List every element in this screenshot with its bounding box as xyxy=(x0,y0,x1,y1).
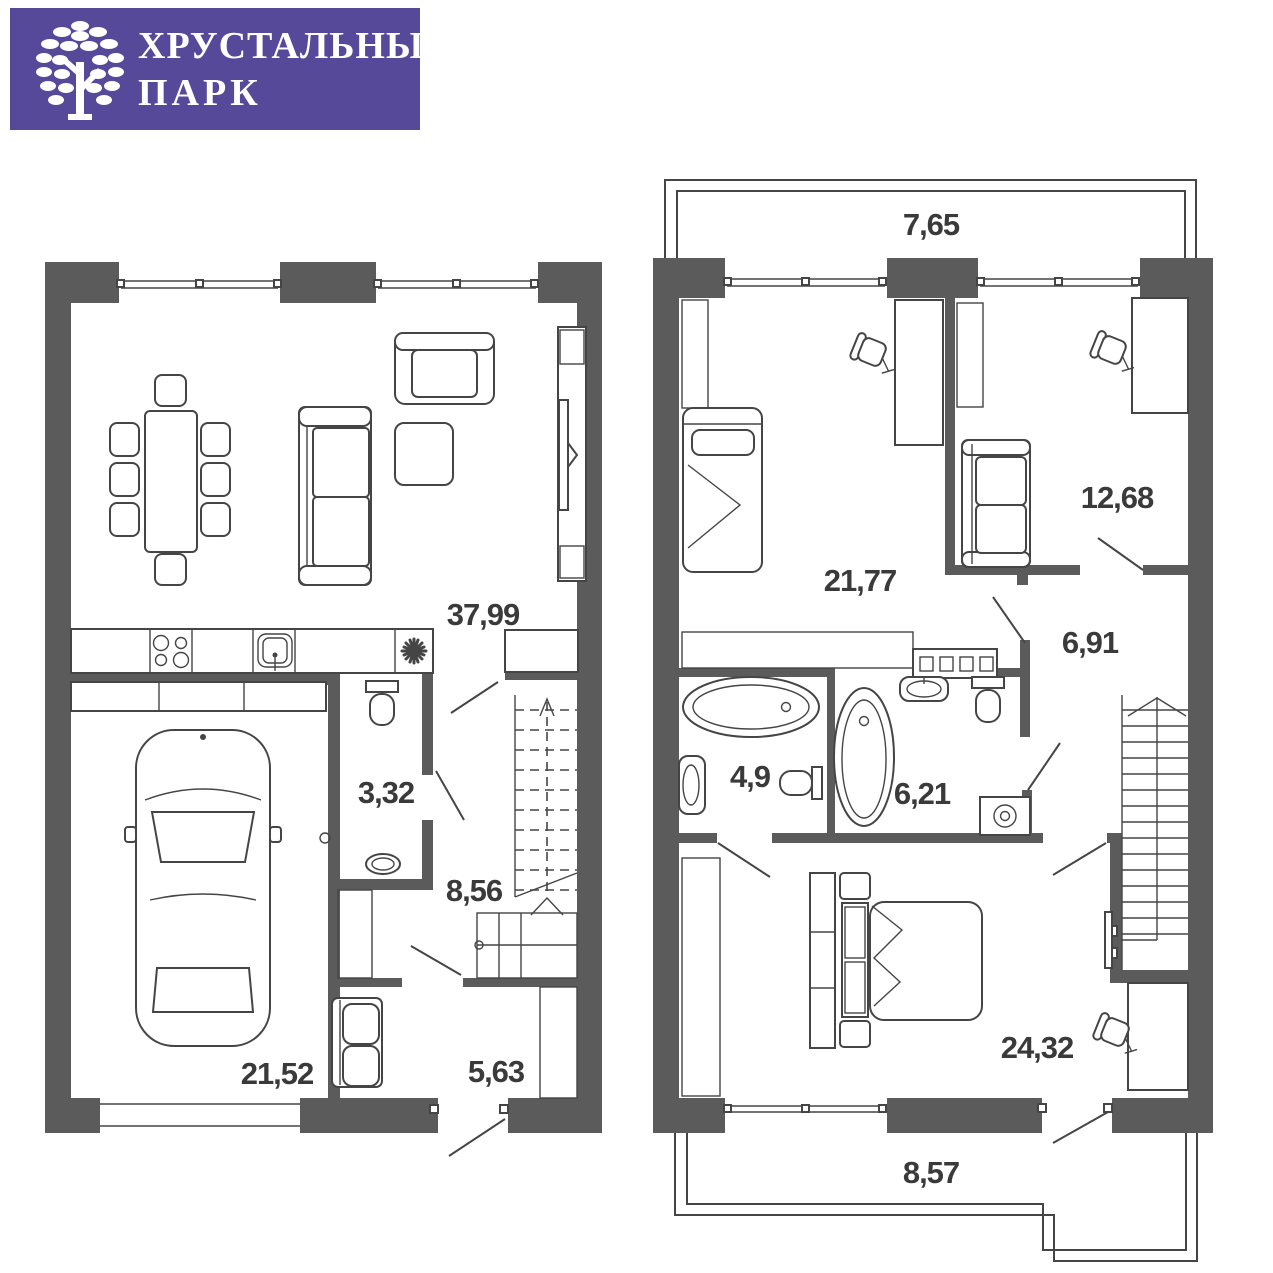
entrance-door xyxy=(430,1105,508,1156)
bedroom3-bed xyxy=(810,873,982,1048)
living-sofa xyxy=(299,407,371,585)
vanity-cabinet xyxy=(913,649,997,678)
room-label-bedroom1: 21,77 xyxy=(824,563,897,598)
floor2-window-top-right xyxy=(977,258,1140,298)
balcony-door xyxy=(1038,1104,1112,1143)
bedroom2-desk xyxy=(1132,298,1188,413)
bathroom2-sink-icon xyxy=(900,677,948,701)
room-label-bath2: 6,21 xyxy=(894,776,951,811)
storage-wardrobe xyxy=(540,987,577,1098)
room-label-garage: 21,52 xyxy=(241,1056,314,1091)
floorplans-canvas: 37,99 3,32 8,56 21,52 5,63 xyxy=(0,0,1273,1273)
bedroom2-wardrobe xyxy=(957,303,983,407)
bedroom1-desk xyxy=(895,300,943,445)
bedroom3-wardrobe xyxy=(682,858,720,1096)
room-label-bedroom2: 12,68 xyxy=(1081,480,1154,515)
armchair xyxy=(395,333,494,404)
room-label-balcony-bottom: 8,57 xyxy=(903,1155,959,1190)
wc-sink-icon xyxy=(366,854,400,874)
room-label-living: 37,99 xyxy=(447,597,520,632)
bathroom1-tub xyxy=(683,677,819,737)
coffee-table xyxy=(395,423,453,485)
bedroom1-wardrobe xyxy=(682,300,708,408)
balcony-bottom xyxy=(675,1133,1197,1261)
room-label-storage: 5,63 xyxy=(468,1054,525,1089)
floor2-plan: 7,65 21,77 12,68 6,91 4,9 6,21 24,32 8,5… xyxy=(653,180,1213,1261)
floor1-stairs-upper xyxy=(505,630,578,897)
room-label-bedroom3: 24,32 xyxy=(1001,1030,1074,1065)
wc-toilet-icon xyxy=(366,681,398,725)
floor1-window-left xyxy=(117,262,281,303)
washing-machine-icon xyxy=(980,797,1030,835)
floor2-window-top-left xyxy=(724,258,887,298)
bedroom2-sofa xyxy=(962,440,1030,567)
dining-table xyxy=(110,375,230,585)
bathroom1-toilet-icon xyxy=(780,767,822,799)
hall-wardrobe xyxy=(682,632,913,668)
bathroom2-toilet-icon xyxy=(972,677,1004,722)
floor1-stairs-lower xyxy=(475,898,577,978)
bathroom2-tub xyxy=(834,688,894,826)
room-label-balcony-top: 7,65 xyxy=(903,207,960,242)
garage-cabinets xyxy=(71,682,326,711)
floor1-plan: 37,99 3,32 8,56 21,52 5,63 xyxy=(45,262,602,1156)
bathroom1-sink-icon xyxy=(679,756,705,814)
garage-gate xyxy=(100,1098,300,1133)
corridor-wardrobe xyxy=(338,890,372,978)
room-label-bath1: 4,9 xyxy=(730,759,771,794)
car xyxy=(125,730,281,1046)
bedroom3-desk xyxy=(1128,983,1188,1090)
kitchen-counter xyxy=(71,629,433,673)
storage-sofa xyxy=(332,998,382,1087)
tv-unit xyxy=(558,327,586,581)
boiler-star-icon xyxy=(402,639,426,663)
room-label-wc: 3,32 xyxy=(358,775,414,810)
floorplan-page: ХРУСТАЛЬНЫЙ ПАРК xyxy=(0,0,1273,1273)
room-label-hall1: 8,56 xyxy=(446,873,503,908)
floor2-window-bottom xyxy=(724,1098,887,1133)
floor1-window-right xyxy=(374,262,538,303)
bedroom1-bed xyxy=(683,408,762,572)
floor2-stairs xyxy=(1122,695,1188,970)
room-label-hall2: 6,91 xyxy=(1062,625,1119,660)
